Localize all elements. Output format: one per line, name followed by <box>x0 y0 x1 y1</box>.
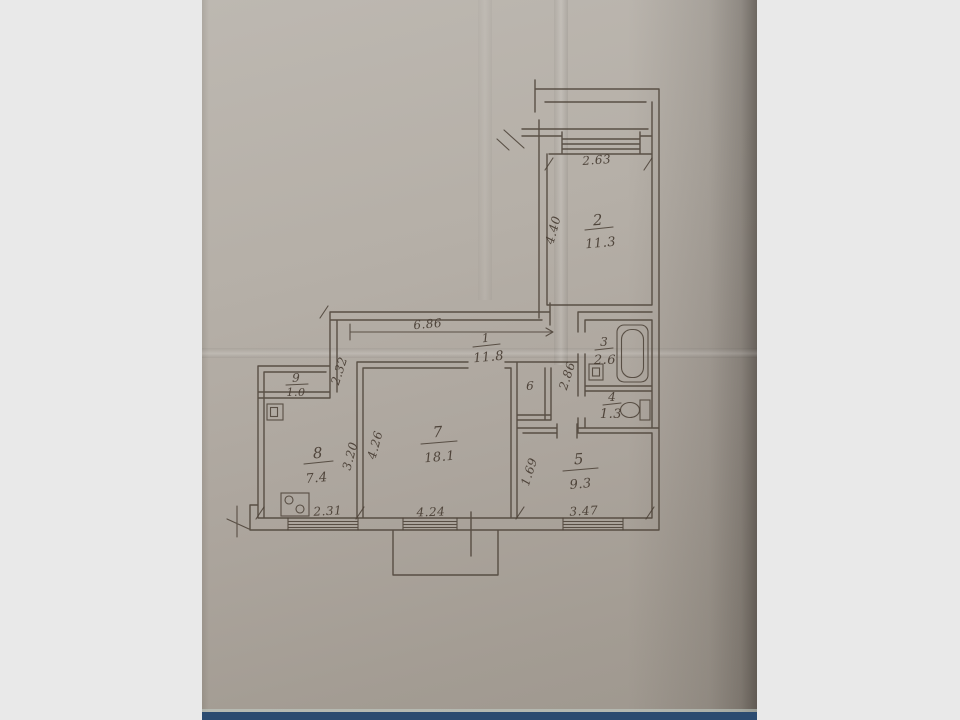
pantry-number: 9 <box>292 371 300 385</box>
photo-bottom-bar <box>202 712 757 720</box>
dimension-label: 2.31 <box>312 503 342 519</box>
wc-number: 4 <box>607 390 616 404</box>
dimension-label: 4.24 <box>415 505 445 520</box>
room-2-number: 2 <box>591 211 603 230</box>
dimension-label: 3.47 <box>569 503 598 518</box>
room-5-area: 9.3 <box>569 476 592 493</box>
dimension-label: 4.40 <box>542 214 563 246</box>
room-5-number: 5 <box>573 450 584 469</box>
wc-area: 1.3 <box>600 407 622 422</box>
dimension-label: 6.86 <box>413 316 443 332</box>
room-2-area: 11.3 <box>585 235 617 253</box>
stove-icon <box>281 493 309 516</box>
pantry-area: 1.0 <box>287 386 306 399</box>
kitchen-area: 7.4 <box>305 470 328 487</box>
toilet-icon <box>621 400 651 420</box>
bath-area: 2.6 <box>593 353 616 368</box>
dimension-label: 4.26 <box>364 429 385 461</box>
living-number: 7 <box>432 423 443 442</box>
dimension-label: 2.32 <box>328 355 350 388</box>
dimension-label: 1.69 <box>518 456 540 488</box>
hall-number: 1 <box>481 331 490 346</box>
kitchen-number: 8 <box>312 444 323 463</box>
hall-area: 11.8 <box>473 349 505 367</box>
dimension-label: 2.86 <box>556 360 578 393</box>
dimension-label: 2.63 <box>581 152 612 168</box>
windows-group <box>288 518 623 530</box>
closet-number: 6 <box>526 379 534 393</box>
floor-plan-drawing: 2 11.3 1 11.8 3 2.6 4 1.3 6 9 1.0 7 18.1… <box>0 0 960 720</box>
bath-number: 3 <box>600 335 608 349</box>
screenshot-stage: 2 11.3 1 11.8 3 2.6 4 1.3 6 9 1.0 7 18.1… <box>0 0 960 720</box>
vent-shaft-icon <box>267 404 283 420</box>
living-area: 18.1 <box>424 449 456 467</box>
bathtub-icon <box>617 325 648 382</box>
